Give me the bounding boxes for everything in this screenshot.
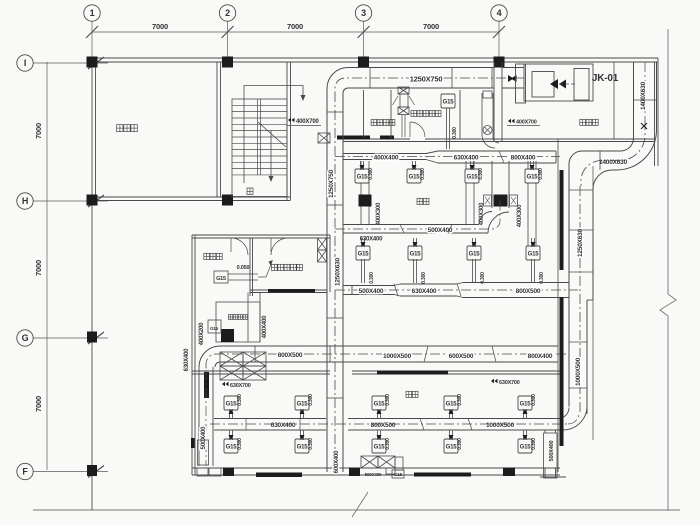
svg-text:G15: G15 bbox=[520, 402, 532, 408]
svg-text:0.300: 0.300 bbox=[539, 272, 545, 284]
svg-text:G15: G15 bbox=[443, 100, 455, 106]
svg-text:600X400: 600X400 bbox=[334, 450, 340, 473]
svg-text:630X700: 630X700 bbox=[230, 383, 251, 389]
svg-text:0.300: 0.300 bbox=[538, 168, 544, 180]
svg-text:0.300: 0.300 bbox=[421, 272, 427, 284]
svg-text:800X500: 800X500 bbox=[516, 288, 541, 295]
svg-text:630X400: 630X400 bbox=[184, 348, 190, 371]
svg-text:0.300: 0.300 bbox=[457, 394, 463, 406]
svg-text:G15: G15 bbox=[467, 175, 479, 181]
svg-text:800X400: 800X400 bbox=[528, 353, 553, 360]
svg-text:400X200: 400X200 bbox=[199, 322, 205, 345]
svg-text:7000: 7000 bbox=[34, 396, 43, 412]
svg-text:0.300: 0.300 bbox=[237, 394, 243, 406]
svg-text:G15: G15 bbox=[527, 175, 539, 181]
svg-text:0.300: 0.300 bbox=[531, 394, 537, 406]
svg-text:7000: 7000 bbox=[34, 260, 43, 276]
svg-text:600X500: 600X500 bbox=[449, 353, 474, 360]
svg-text:630X400: 630X400 bbox=[412, 288, 437, 295]
svg-text:G15: G15 bbox=[297, 445, 309, 451]
svg-text:500X400: 500X400 bbox=[359, 288, 384, 295]
svg-text:1250X750: 1250X750 bbox=[410, 75, 443, 84]
svg-text:630X400: 630X400 bbox=[271, 422, 296, 429]
svg-text:800X500: 800X500 bbox=[278, 352, 303, 359]
svg-text:G15: G15 bbox=[446, 445, 458, 451]
svg-text:7000: 7000 bbox=[287, 22, 303, 31]
svg-text:400X400: 400X400 bbox=[374, 155, 399, 162]
svg-text:G15: G15 bbox=[358, 252, 370, 258]
svg-text:0.300: 0.300 bbox=[452, 127, 458, 139]
svg-text:7000: 7000 bbox=[152, 22, 168, 31]
svg-text:400X300: 400X300 bbox=[376, 202, 382, 225]
svg-text:500X400: 500X400 bbox=[549, 441, 555, 462]
svg-text:0.300: 0.300 bbox=[369, 272, 375, 284]
svg-text:1250X750: 1250X750 bbox=[328, 169, 335, 198]
svg-text:G: G bbox=[22, 333, 29, 343]
svg-text:F: F bbox=[22, 467, 28, 477]
svg-text:2: 2 bbox=[225, 8, 230, 18]
svg-text:G15: G15 bbox=[394, 472, 403, 477]
svg-text:I: I bbox=[24, 58, 26, 68]
svg-text:400X400: 400X400 bbox=[262, 315, 268, 338]
svg-text:400X700: 400X700 bbox=[296, 119, 319, 125]
svg-text:0.300: 0.300 bbox=[308, 394, 314, 406]
svg-text:0.300: 0.300 bbox=[420, 168, 426, 180]
svg-text:1: 1 bbox=[90, 8, 95, 18]
svg-text:0.300: 0.300 bbox=[478, 168, 484, 180]
svg-text:G15: G15 bbox=[469, 252, 481, 258]
svg-text:4: 4 bbox=[497, 8, 502, 18]
svg-text:G15: G15 bbox=[297, 402, 309, 408]
svg-text:G15: G15 bbox=[216, 276, 226, 282]
svg-text:3: 3 bbox=[361, 8, 366, 18]
svg-text:800X500: 800X500 bbox=[371, 422, 396, 429]
svg-text:1000X500: 1000X500 bbox=[575, 357, 582, 386]
svg-text:0.300: 0.300 bbox=[531, 438, 537, 450]
svg-text:630X700: 630X700 bbox=[499, 380, 520, 386]
svg-text:0.050: 0.050 bbox=[237, 265, 250, 271]
svg-text:JK-01: JK-01 bbox=[592, 73, 619, 84]
svg-text:0.300: 0.300 bbox=[385, 394, 391, 406]
svg-text:G15: G15 bbox=[357, 175, 369, 181]
svg-text:G15: G15 bbox=[520, 445, 532, 451]
svg-text:1250X630: 1250X630 bbox=[577, 228, 584, 257]
svg-text:G15: G15 bbox=[226, 445, 238, 451]
svg-text:1250X630: 1250X630 bbox=[335, 257, 342, 286]
svg-text:0.300: 0.300 bbox=[480, 272, 486, 284]
svg-text:H: H bbox=[22, 196, 28, 206]
svg-text:800X400: 800X400 bbox=[511, 155, 536, 162]
svg-text:0.300: 0.300 bbox=[368, 168, 374, 180]
svg-text:G15: G15 bbox=[410, 252, 422, 258]
svg-text:7000: 7000 bbox=[423, 22, 439, 31]
svg-text:1400X630: 1400X630 bbox=[640, 81, 647, 110]
svg-text:630X400: 630X400 bbox=[360, 237, 383, 243]
svg-text:0.300: 0.300 bbox=[237, 438, 243, 450]
svg-text:G15: G15 bbox=[210, 326, 219, 331]
svg-text:630X400: 630X400 bbox=[454, 155, 479, 162]
svg-text:0.300: 0.300 bbox=[385, 438, 391, 450]
svg-text:7000: 7000 bbox=[34, 123, 43, 139]
svg-text:500X400: 500X400 bbox=[201, 426, 207, 449]
svg-text:1000X500: 1000X500 bbox=[486, 422, 515, 429]
svg-text:1000X500: 1000X500 bbox=[383, 353, 412, 360]
svg-text:0.300: 0.300 bbox=[457, 438, 463, 450]
svg-text:500X400: 500X400 bbox=[365, 472, 382, 477]
svg-text:G15: G15 bbox=[528, 252, 540, 258]
svg-text:G15: G15 bbox=[374, 402, 386, 408]
svg-text:G15: G15 bbox=[226, 402, 238, 408]
svg-text:400X300: 400X300 bbox=[517, 204, 523, 227]
svg-text:G15: G15 bbox=[374, 445, 386, 451]
svg-text:400X700: 400X700 bbox=[516, 120, 537, 126]
svg-text:G15: G15 bbox=[446, 402, 458, 408]
svg-text:G15: G15 bbox=[409, 175, 421, 181]
svg-text:400X300: 400X300 bbox=[479, 202, 485, 225]
svg-text:0.300: 0.300 bbox=[308, 438, 314, 450]
